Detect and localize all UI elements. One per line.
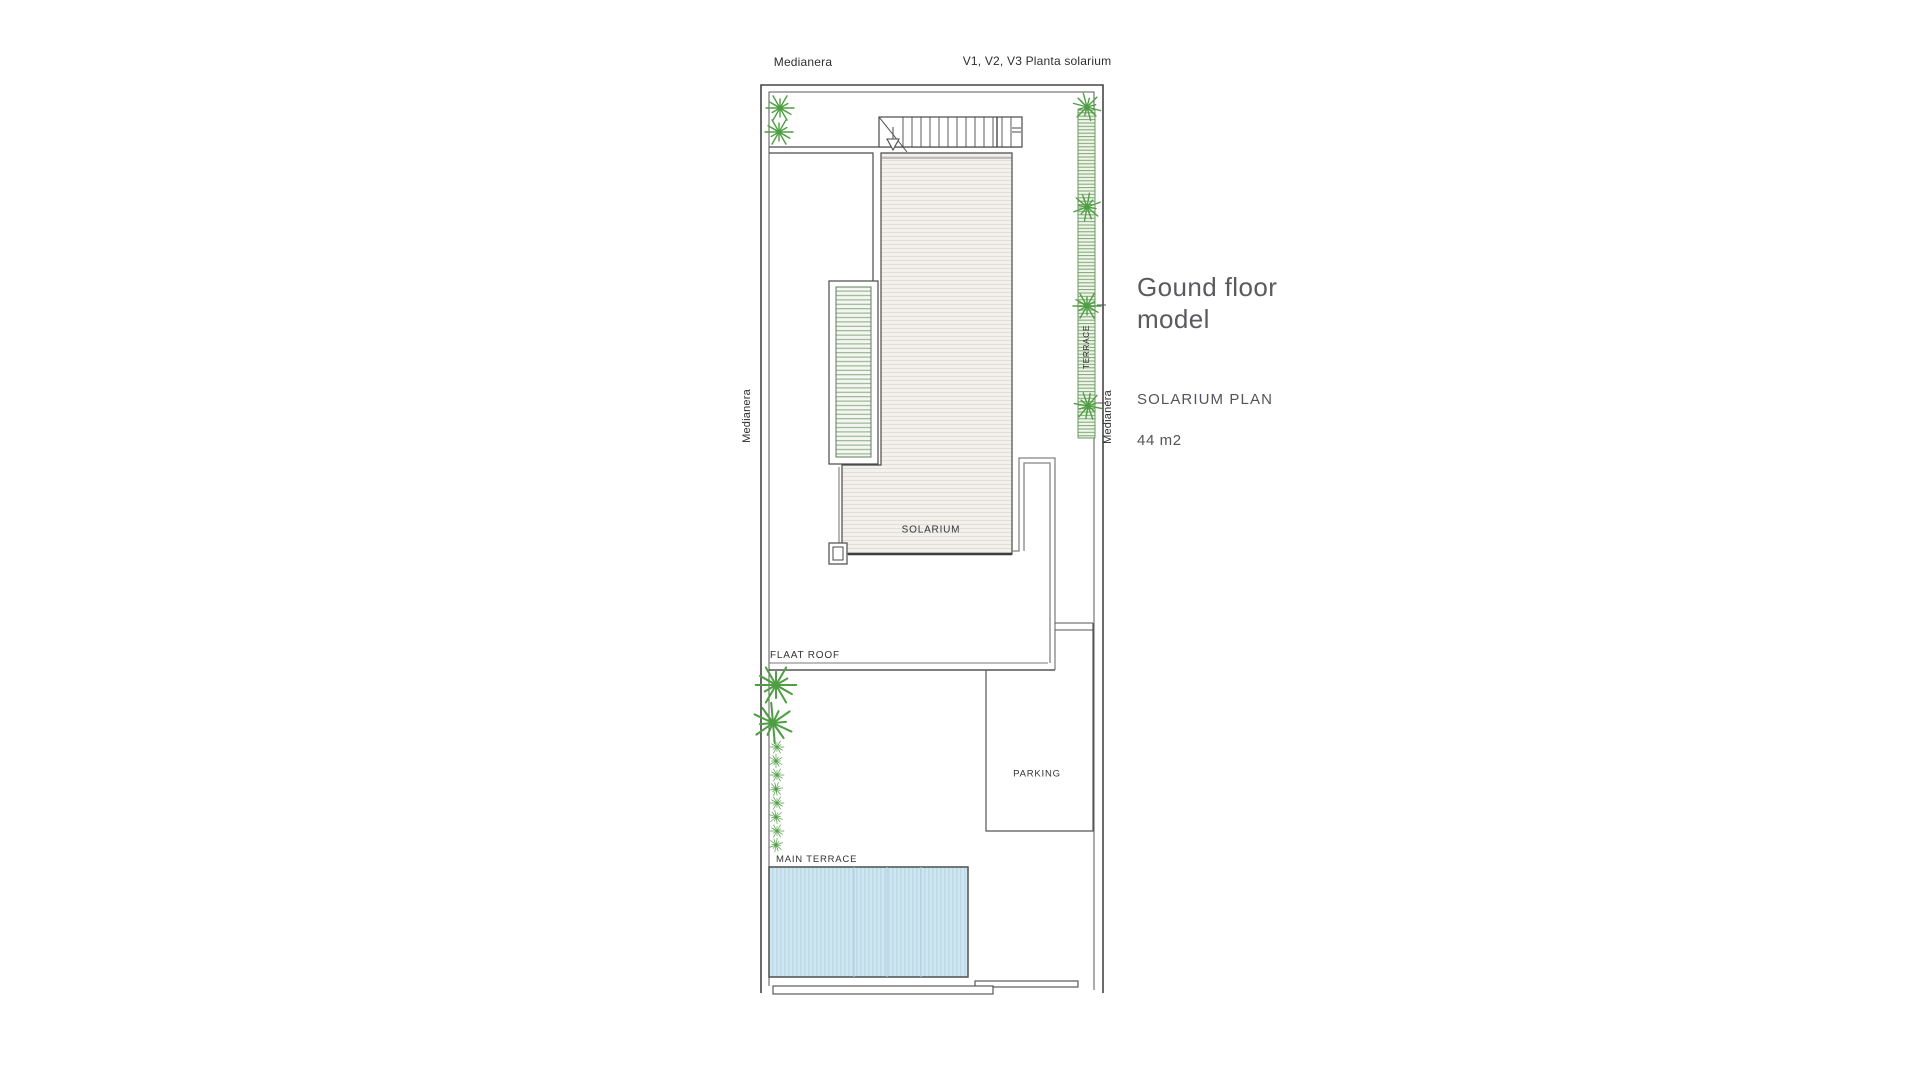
main-terrace-label: MAIN TERRACE [776, 854, 857, 865]
border-tick-marks [1097, 305, 1106, 403]
parking-outline [986, 623, 1093, 831]
roof-step-walls [1012, 458, 1055, 670]
medianera-left-label: Medianera [741, 389, 753, 443]
column-symbol [829, 543, 847, 564]
tree-icon [766, 96, 794, 120]
solarium-label: SOLARIUM [902, 525, 961, 536]
palm-tree-icon [747, 699, 799, 748]
page-title-line2: model [1137, 303, 1277, 335]
shrub-row [767, 741, 786, 854]
stairs [879, 117, 1022, 152]
bottom-wall-segment-left [773, 986, 993, 994]
page-title-line1: Gound floor [1137, 271, 1277, 303]
planter-bed [836, 287, 871, 457]
medianera-right-label: Medianera [1102, 390, 1114, 444]
side-terrace-strip [1078, 110, 1095, 438]
black-star-tree-icon [1073, 294, 1101, 318]
terrace-side-label: TERRACE [1081, 325, 1091, 369]
plan-area-value: 44 m2 [1137, 432, 1182, 449]
parking-label: PARKING [1013, 769, 1061, 780]
floor-plan-drawing [0, 0, 1920, 1080]
medianera-top-label: Medianera [774, 55, 833, 69]
plan-subtitle: SOLARIUM PLAN [1137, 391, 1273, 408]
pool [769, 867, 968, 977]
views-note-label: V1, V2, V3 Planta solarium [963, 54, 1112, 68]
page-title: Gound floor model [1137, 271, 1277, 335]
page: Medianera V1, V2, V3 Planta solarium Med… [0, 0, 1920, 1080]
flat-roof-label: FLAAT ROOF [770, 650, 840, 661]
left-room-outline [769, 153, 873, 281]
